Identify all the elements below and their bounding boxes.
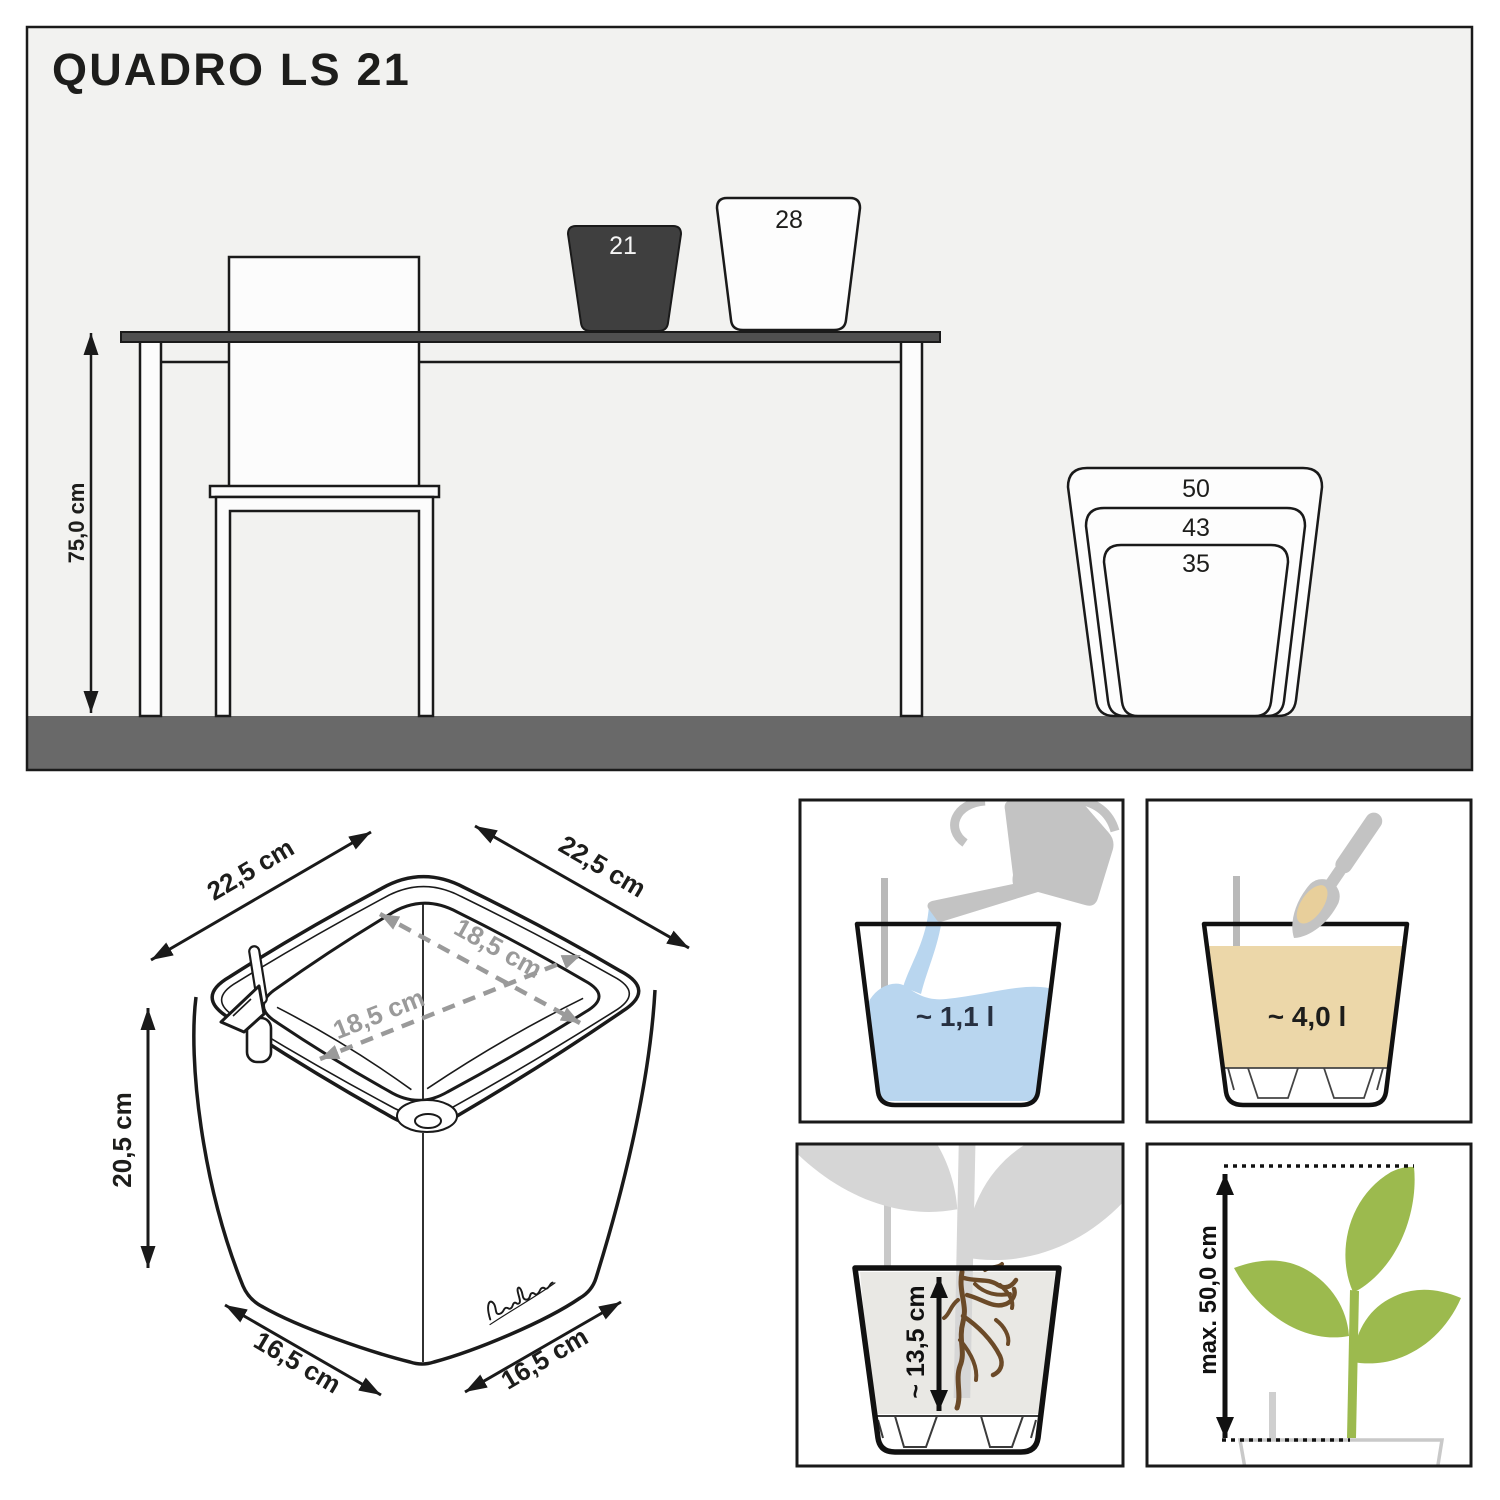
svg-text:21: 21: [609, 232, 637, 260]
svg-text:QUADRO LS 21: QUADRO LS 21: [52, 44, 411, 95]
svg-text:22,5 cm: 22,5 cm: [202, 832, 299, 906]
svg-text:75,0 cm: 75,0 cm: [64, 483, 89, 564]
svg-text:~ 13,5 cm: ~ 13,5 cm: [902, 1285, 930, 1398]
svg-text:16,5 cm: 16,5 cm: [496, 1321, 593, 1395]
svg-text:35: 35: [1182, 550, 1210, 578]
svg-text:50: 50: [1182, 475, 1210, 503]
svg-text:~ 1,1 l: ~ 1,1 l: [916, 1001, 995, 1032]
svg-text:22,5 cm: 22,5 cm: [554, 829, 651, 903]
svg-text:~ 4,0 l: ~ 4,0 l: [1268, 1001, 1347, 1032]
svg-text:43: 43: [1182, 514, 1210, 542]
svg-text:20,5 cm: 20,5 cm: [107, 1092, 137, 1187]
svg-text:max. 50,0 cm: max. 50,0 cm: [1195, 1225, 1222, 1374]
svg-text:28: 28: [775, 206, 803, 234]
